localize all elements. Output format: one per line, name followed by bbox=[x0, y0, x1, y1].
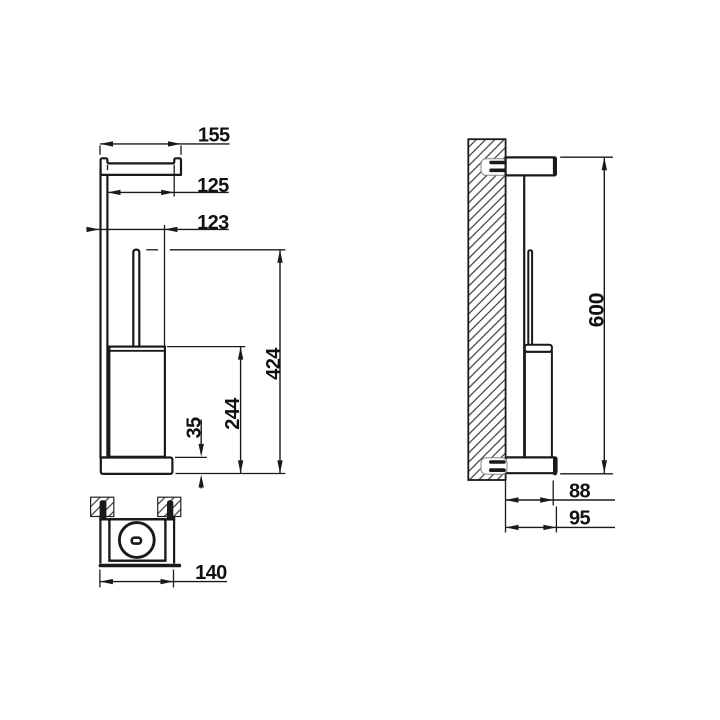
svg-text:88: 88 bbox=[569, 480, 591, 502]
svg-text:125: 125 bbox=[197, 175, 229, 197]
svg-text:424: 424 bbox=[263, 347, 285, 380]
svg-text:123: 123 bbox=[197, 212, 229, 234]
svg-text:600: 600 bbox=[586, 293, 609, 327]
svg-text:244: 244 bbox=[222, 397, 244, 430]
svg-text:155: 155 bbox=[198, 124, 230, 146]
svg-text:35: 35 bbox=[184, 417, 206, 439]
svg-text:95: 95 bbox=[569, 508, 591, 530]
svg-text:140: 140 bbox=[195, 562, 227, 584]
